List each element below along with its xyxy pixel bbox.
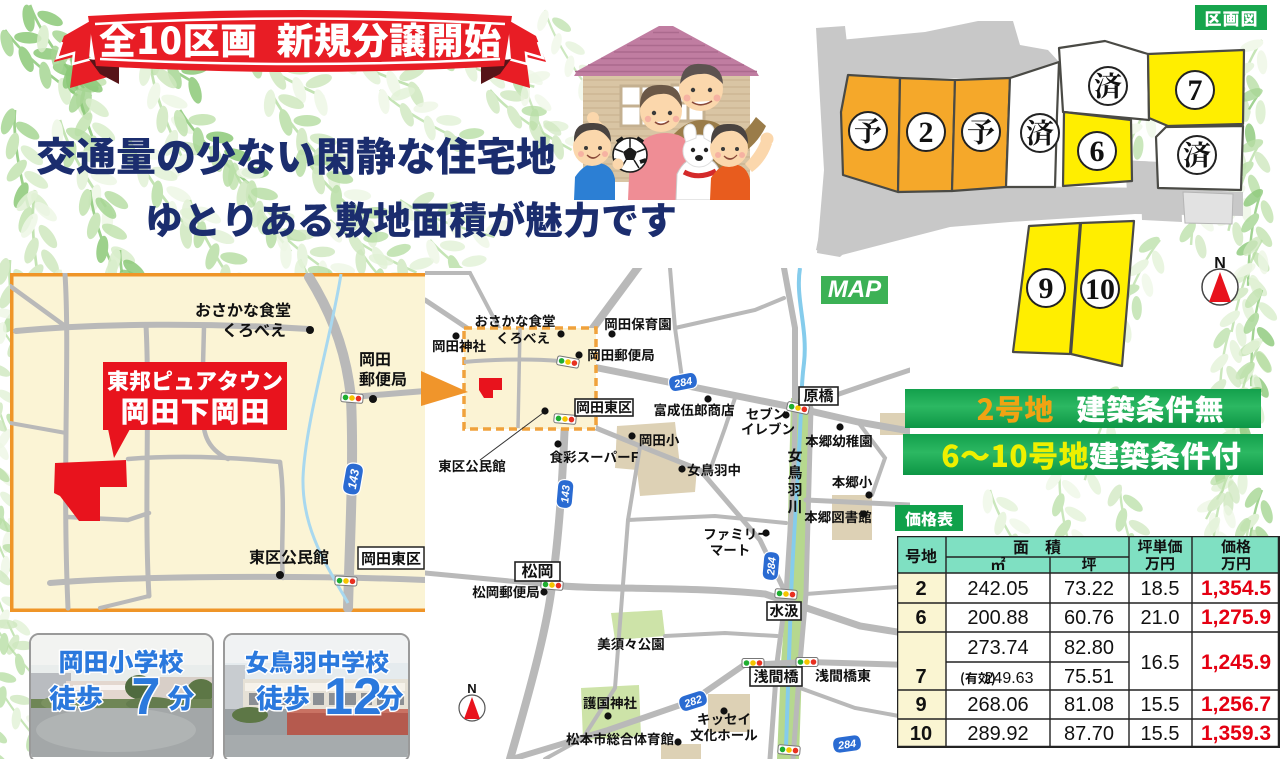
svg-text:15.5: 15.5: [1141, 694, 1180, 716]
svg-text:21.0: 21.0: [1141, 607, 1180, 629]
svg-text:1,245.9: 1,245.9: [1201, 651, 1271, 674]
svg-text:1,275.9: 1,275.9: [1201, 606, 1271, 629]
svg-text:82.80: 82.80: [1064, 637, 1114, 659]
svg-text:249.63: 249.63: [985, 670, 1034, 687]
svg-text:18.5: 18.5: [1141, 578, 1180, 600]
svg-text:60.76: 60.76: [1064, 607, 1114, 629]
svg-text:75.51: 75.51: [1064, 666, 1114, 688]
svg-text:1,256.7: 1,256.7: [1201, 693, 1271, 716]
svg-text:284: 284: [765, 557, 779, 577]
svg-text:7: 7: [132, 668, 161, 726]
svg-text:2: 2: [919, 116, 934, 149]
svg-text:10: 10: [910, 723, 932, 745]
svg-text:15.5: 15.5: [1141, 723, 1180, 745]
svg-text:73.22: 73.22: [1064, 578, 1114, 600]
svg-text:9: 9: [915, 694, 926, 716]
svg-text:1,354.5: 1,354.5: [1201, 577, 1271, 600]
svg-text:12: 12: [324, 668, 382, 726]
svg-text:10: 10: [1085, 273, 1115, 306]
svg-text:1,359.3: 1,359.3: [1201, 722, 1271, 745]
svg-text:N: N: [1214, 255, 1226, 272]
svg-text:9: 9: [1039, 272, 1054, 305]
svg-text:273.74: 273.74: [967, 637, 1028, 659]
svg-text:242.05: 242.05: [967, 578, 1028, 600]
svg-text:7: 7: [915, 666, 926, 688]
svg-text:81.08: 81.08: [1064, 694, 1114, 716]
svg-text:N: N: [467, 681, 476, 696]
svg-text:16.5: 16.5: [1141, 652, 1180, 674]
svg-text:7: 7: [1188, 74, 1203, 107]
svg-text:143: 143: [559, 485, 573, 504]
svg-text:268.06: 268.06: [967, 694, 1028, 716]
svg-text:6: 6: [1090, 135, 1105, 168]
svg-text:200.88: 200.88: [967, 607, 1028, 629]
svg-text:6: 6: [915, 607, 926, 629]
svg-text:289.92: 289.92: [967, 723, 1028, 745]
svg-text:2: 2: [915, 578, 926, 600]
svg-text:87.70: 87.70: [1064, 723, 1114, 745]
